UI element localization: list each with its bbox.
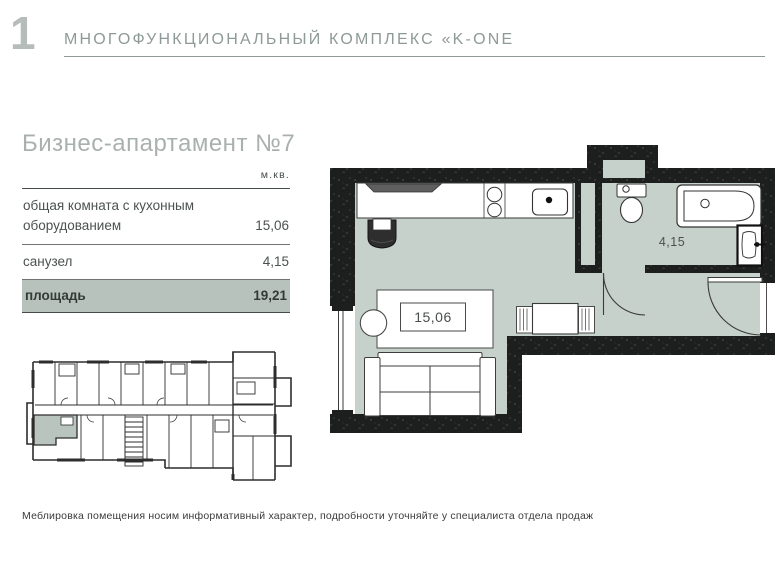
duct-channel bbox=[581, 183, 595, 265]
table-row-total: площадь 19,21 bbox=[22, 280, 290, 313]
table-row: общая комната с кухонным оборудованием 1… bbox=[22, 189, 290, 245]
row-label: общая комната с кухонным оборудованием bbox=[23, 196, 223, 237]
row-label: площадь bbox=[25, 286, 86, 306]
shaft-niche bbox=[603, 160, 645, 178]
row-value: 4,15 bbox=[263, 252, 289, 272]
area-table: м.кв. общая комната с кухонным оборудова… bbox=[22, 163, 290, 313]
sofa bbox=[365, 353, 496, 417]
bathtub bbox=[677, 185, 761, 227]
apartment-heading: Бизнес-апартамент №7 bbox=[22, 130, 295, 158]
table-unit-header: м.кв. bbox=[22, 163, 290, 189]
header-divider bbox=[64, 56, 765, 57]
side-table bbox=[360, 310, 386, 336]
building-overview-plan bbox=[25, 348, 298, 490]
row-value: 15,06 bbox=[255, 216, 289, 236]
bathroom-sink bbox=[738, 226, 767, 266]
disclaimer-text: Меблировка помещения носим информативный… bbox=[22, 510, 593, 522]
table-row: санузел 4,15 bbox=[22, 245, 290, 280]
chair bbox=[368, 219, 396, 248]
row-label: санузел bbox=[23, 252, 72, 272]
bathroom-area-label: 4,15 bbox=[659, 235, 685, 249]
dining-table bbox=[533, 304, 579, 335]
window bbox=[330, 304, 355, 417]
living-area-label: 15,06 bbox=[414, 309, 452, 325]
apartment-floorplan: 15,06 bbox=[325, 140, 777, 440]
page-number: 1 bbox=[10, 10, 36, 56]
kitchen-hood bbox=[366, 184, 441, 192]
brochure-page: 1 МНОГОФУНКЦИОНАЛЬНЫЙ КОМПЛЕКС «K-ONE Би… bbox=[0, 0, 780, 580]
complex-title: МНОГОФУНКЦИОНАЛЬНЫЙ КОМПЛЕКС «K-ONE bbox=[64, 31, 514, 49]
row-value: 19,21 bbox=[253, 286, 287, 306]
kitchen-sink bbox=[533, 189, 568, 215]
